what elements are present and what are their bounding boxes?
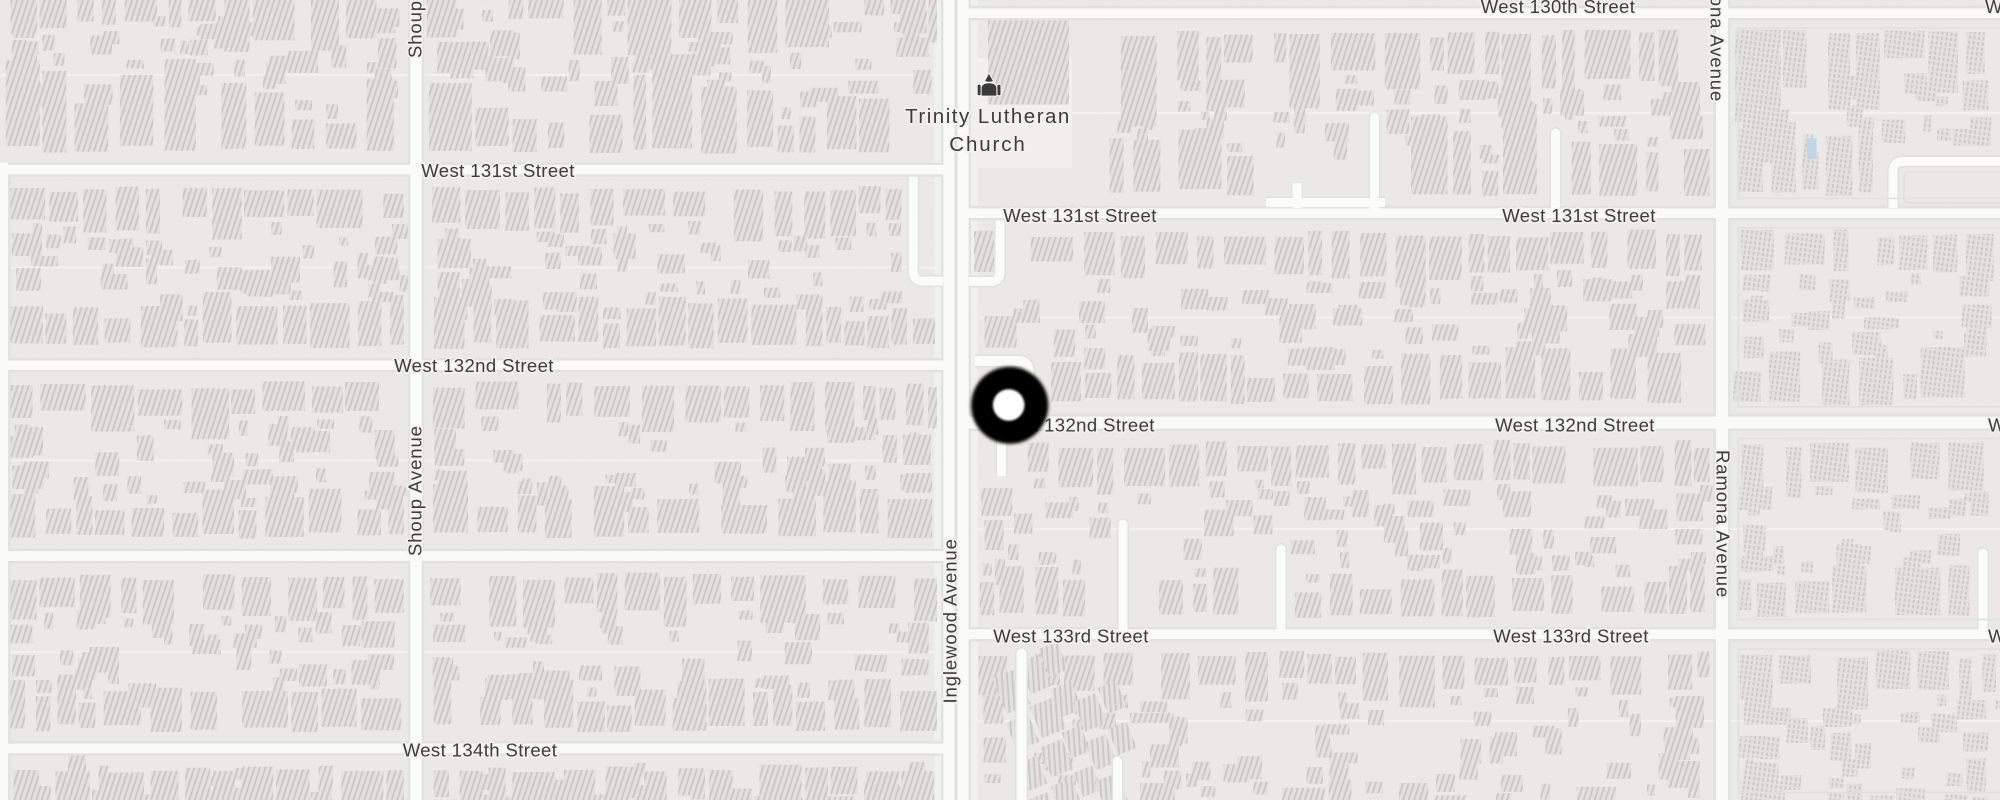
svg-text:West 130th Street: West 130th Street: [1481, 0, 1636, 17]
svg-text:West 133rd Street: West 133rd Street: [1988, 626, 2000, 647]
svg-text:West 131st Street: West 131st Street: [1003, 205, 1157, 226]
svg-text:West 132nd Street: West 132nd Street: [394, 355, 554, 376]
svg-text:West 131st Street: West 131st Street: [1502, 205, 1656, 226]
svg-text:Ramona Avenue: Ramona Avenue: [1713, 450, 1734, 598]
svg-text:West 131st Street: West 131st Street: [421, 160, 575, 181]
svg-text:West 130th Street: West 130th Street: [1985, 0, 2000, 17]
svg-text:West 133rd Street: West 133rd Street: [1493, 626, 1649, 647]
svg-text:West 134th Street: West 134th Street: [403, 740, 558, 761]
svg-text:Shoup Avenue: Shoup Avenue: [405, 425, 426, 556]
svg-text:Inglewood Avenue: Inglewood Avenue: [940, 538, 961, 703]
svg-text:Church: Church: [949, 133, 1027, 156]
svg-text:Trinity Lutheran: Trinity Lutheran: [905, 105, 1071, 128]
svg-text:West 132nd Street: West 132nd Street: [1495, 415, 1655, 436]
svg-text:Shoup Avenue: Shoup Avenue: [405, 0, 426, 58]
svg-text:Ramona Avenue: Ramona Avenue: [1707, 0, 1728, 102]
svg-text:West 132nd Street: West 132nd Street: [1988, 415, 2000, 436]
svg-text:West 133rd Street: West 133rd Street: [993, 626, 1149, 647]
